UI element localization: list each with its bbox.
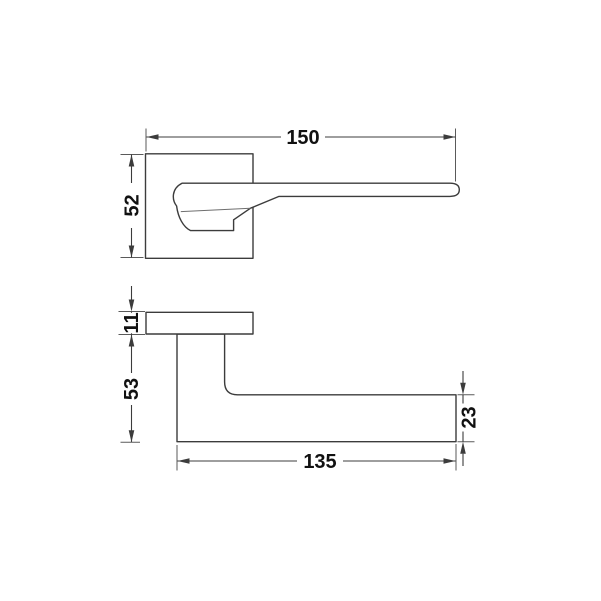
arrowhead-down xyxy=(129,246,135,258)
arrowhead-down xyxy=(460,383,466,395)
dimension-label-overall-length: 150 xyxy=(286,127,319,149)
lever-front-outline xyxy=(173,183,459,230)
dimension-rosette-height: 52 xyxy=(121,155,144,258)
dimension-label-neck-projection: 53 xyxy=(121,378,143,400)
dimension-neck-projection: 53 xyxy=(121,335,144,443)
dimension-lever-thickness: 23 xyxy=(458,371,481,466)
front-view: 150 52 xyxy=(121,127,460,258)
dimension-label-lever-length: 135 xyxy=(303,451,336,473)
side-view: 11 53 23 xyxy=(119,286,481,473)
arrowhead-left xyxy=(178,458,190,464)
drawing-canvas: 150 52 xyxy=(0,0,601,601)
arrowhead-down xyxy=(129,430,135,442)
dimension-label-rosette-height: 52 xyxy=(122,194,144,216)
arrowhead-right xyxy=(444,134,456,140)
arrowhead-up xyxy=(129,155,135,167)
arrowhead-left xyxy=(147,134,159,140)
dimension-label-lever-thickness: 23 xyxy=(459,406,481,428)
dimension-lever-length: 135 xyxy=(177,444,456,473)
arrowhead-down xyxy=(129,300,135,312)
technical-drawing: 150 52 xyxy=(0,0,601,601)
arrowhead-up xyxy=(460,442,466,454)
rosette-side-outline xyxy=(146,312,253,334)
arrowhead-right xyxy=(444,458,456,464)
dimension-label-rosette-thickness: 11 xyxy=(121,312,143,333)
lever-side-outline xyxy=(177,334,456,442)
